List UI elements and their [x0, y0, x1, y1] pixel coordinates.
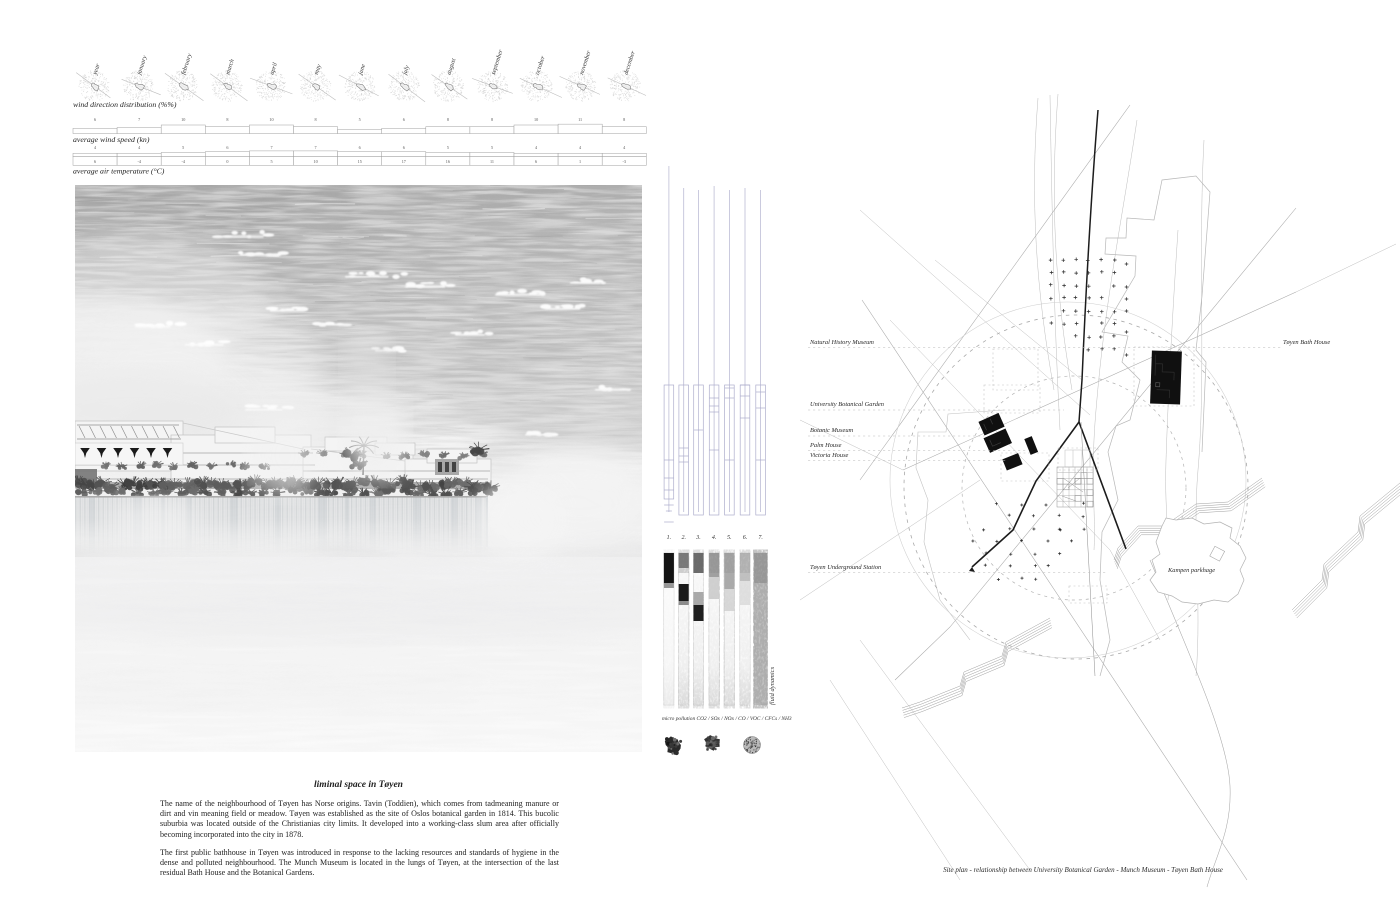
svg-text:3.: 3. [695, 535, 701, 541]
svg-text:4: 4 [138, 145, 141, 150]
svg-text:4.: 4. [712, 534, 717, 541]
svg-text:8: 8 [623, 117, 625, 122]
svg-text:7: 7 [138, 117, 140, 122]
svg-text:7: 7 [270, 145, 272, 150]
svg-text:4: 4 [535, 145, 538, 150]
svg-text:5.: 5. [727, 535, 732, 541]
svg-text:november: november [578, 49, 592, 75]
svg-text:16: 16 [446, 159, 450, 164]
svg-text:august: august [446, 57, 458, 75]
svg-text:april: april [269, 62, 280, 76]
svg-text:september: september [490, 48, 505, 75]
svg-text:5: 5 [359, 117, 361, 122]
svg-text:10: 10 [534, 117, 538, 122]
svg-text:7: 7 [315, 145, 317, 150]
svg-text:6: 6 [94, 159, 96, 164]
svg-text:4: 4 [579, 145, 582, 150]
svg-text:4: 4 [94, 145, 97, 150]
svg-text:10: 10 [269, 117, 273, 122]
svg-text:Site plan - relationship betwe: Site plan - relationship between Univers… [943, 866, 1223, 874]
svg-text:1.: 1. [667, 535, 672, 541]
svg-text:Palm House: Palm House [809, 442, 842, 449]
svg-text:6.: 6. [743, 535, 748, 541]
svg-text:december: december [623, 50, 637, 76]
svg-text:micro pollution CO2 / SOx / NO: micro pollution CO2 / SOx / NOx / CO / V… [662, 716, 792, 722]
svg-text:6: 6 [535, 159, 537, 164]
svg-text:6: 6 [403, 145, 405, 150]
svg-text:average air temperature (°C): average air temperature (°C) [73, 167, 165, 176]
svg-text:average wind speed (kn): average wind speed (kn) [73, 135, 150, 144]
svg-text:july: july [401, 64, 411, 76]
svg-text:Botanic Museum: Botanic Museum [810, 427, 854, 434]
svg-text:6: 6 [403, 117, 405, 122]
svg-text:6: 6 [226, 145, 228, 150]
svg-text:5: 5 [182, 145, 184, 150]
svg-text:4: 4 [623, 145, 626, 150]
svg-text:10: 10 [181, 117, 185, 122]
svg-text:6: 6 [94, 117, 96, 122]
svg-text:0: 0 [226, 159, 228, 164]
svg-text:5: 5 [491, 145, 493, 150]
svg-text:Natural History Museum: Natural History Museum [809, 339, 874, 346]
svg-text:march: march [224, 58, 236, 75]
svg-text:-3: -3 [622, 159, 626, 164]
svg-text:wind direction distribution (%: wind direction distribution (%%) [73, 100, 177, 109]
svg-text:8: 8 [447, 117, 449, 122]
svg-text:11: 11 [490, 159, 494, 164]
svg-text:8: 8 [491, 117, 493, 122]
svg-text:february: february [180, 53, 193, 76]
svg-text:october: october [534, 55, 547, 76]
svg-text:Tøyen Bath House: Tøyen Bath House [1283, 339, 1330, 346]
svg-text:6: 6 [359, 145, 361, 150]
svg-text:7.: 7. [758, 535, 763, 541]
svg-text:11: 11 [578, 117, 582, 122]
svg-text:fluid dynamics: fluid dynamics [769, 666, 776, 705]
svg-text:8: 8 [226, 117, 228, 122]
svg-text:10: 10 [314, 159, 318, 164]
svg-text:University Botanical Garden: University Botanical Garden [810, 401, 884, 408]
svg-text:january: january [135, 55, 148, 77]
svg-text:5: 5 [447, 145, 449, 150]
svg-text:1: 1 [579, 159, 581, 164]
svg-text:8: 8 [315, 117, 317, 122]
svg-text:2.: 2. [681, 535, 686, 541]
svg-text:Victoria House: Victoria House [810, 452, 849, 459]
svg-text:15: 15 [358, 159, 362, 164]
svg-text:5: 5 [270, 159, 272, 164]
svg-text:17: 17 [402, 159, 406, 164]
svg-text:Kampen parkhage: Kampen parkhage [1167, 567, 1215, 574]
svg-text:Tøyen Underground Station: Tøyen Underground Station [810, 564, 881, 571]
